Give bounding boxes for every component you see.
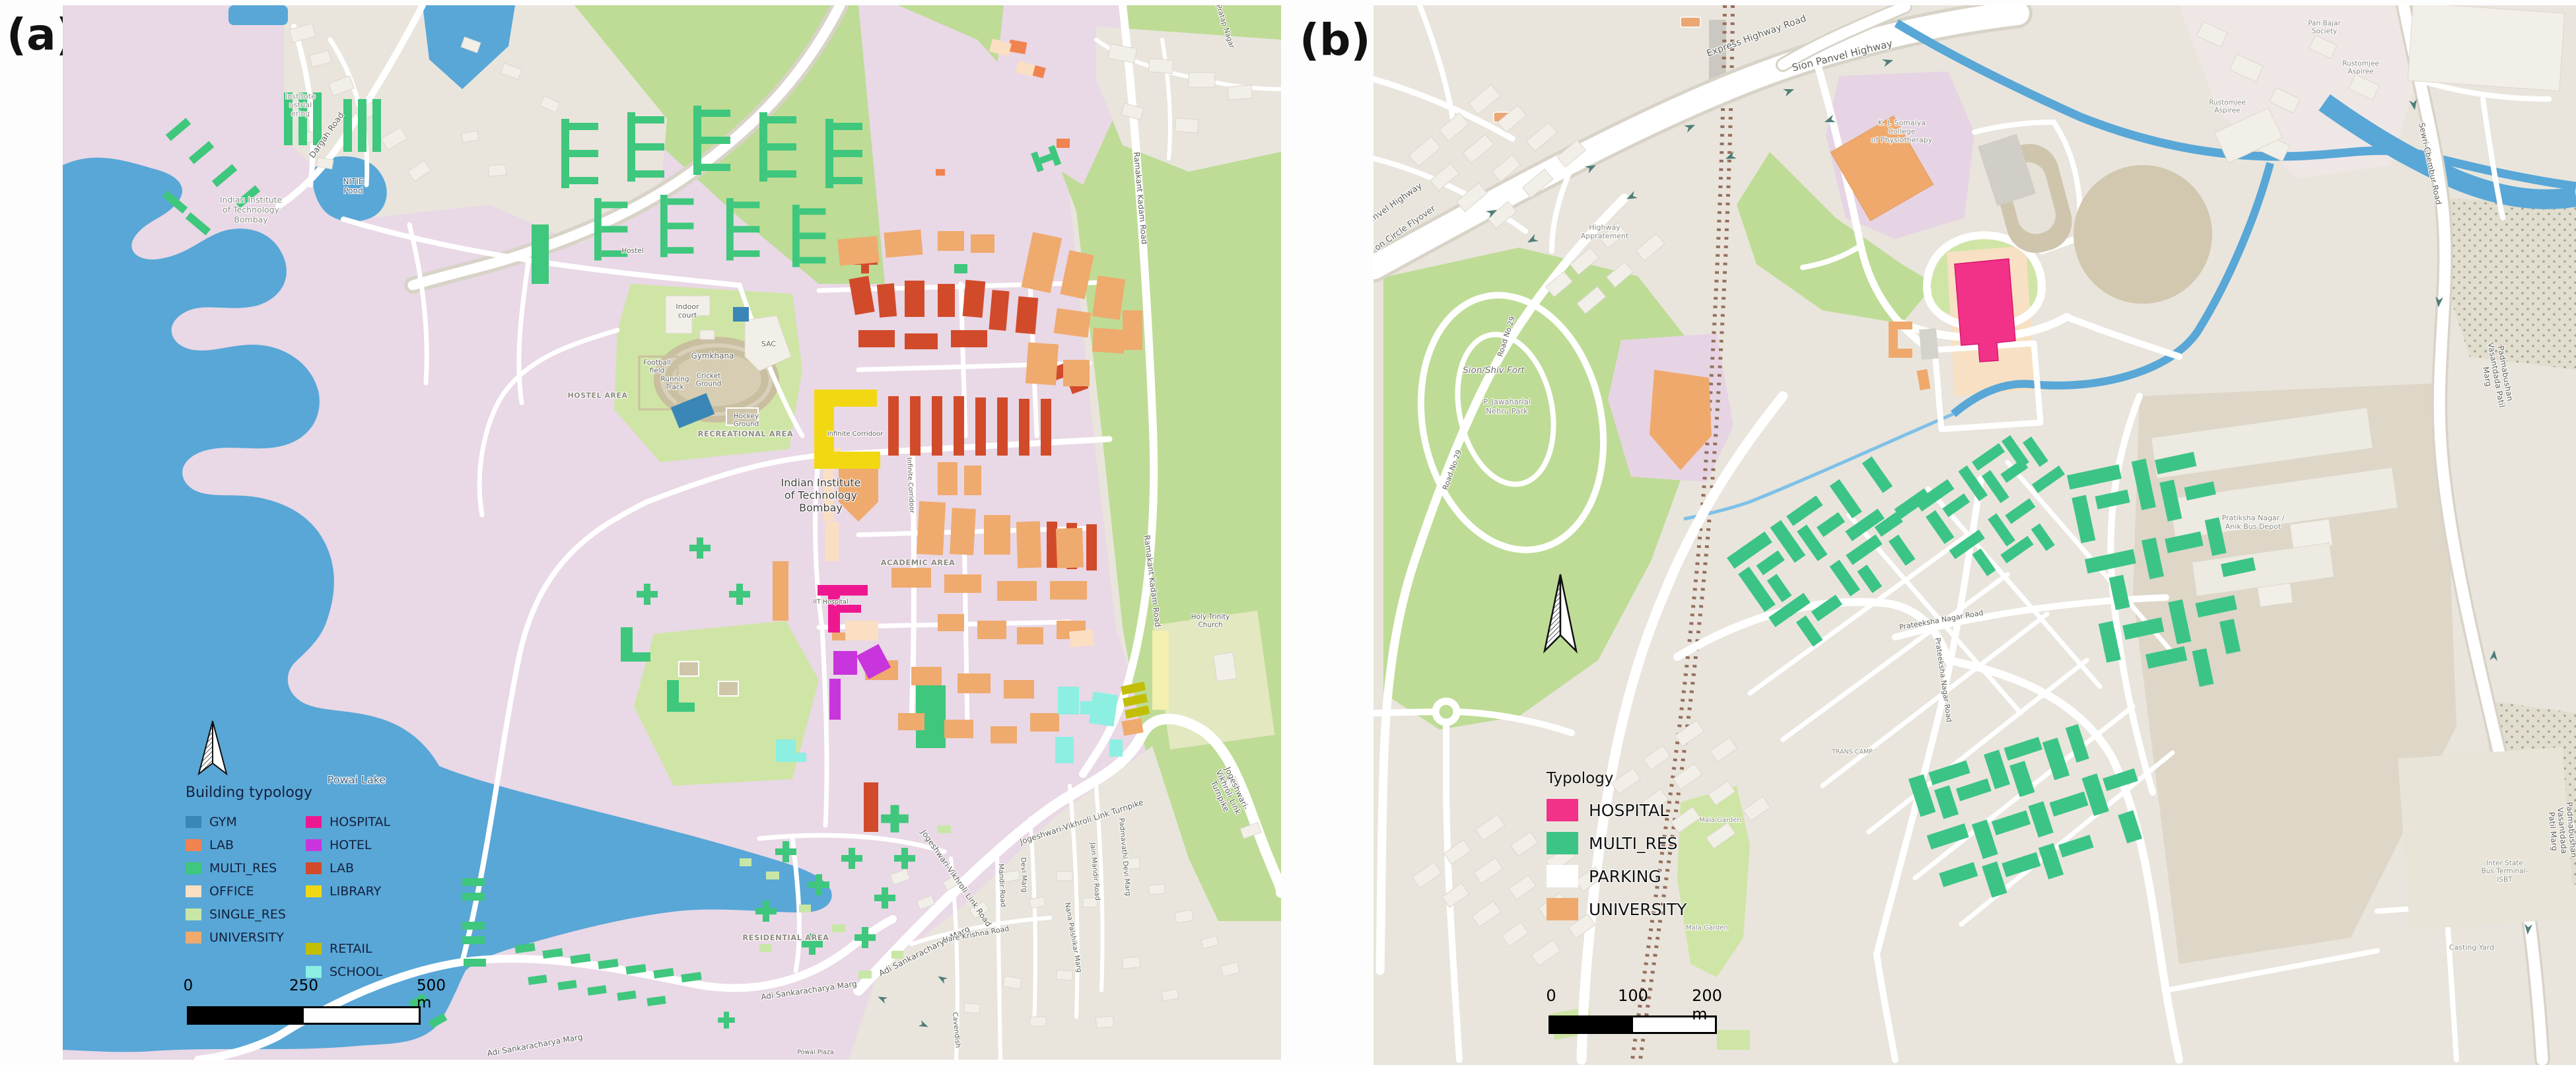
map-panel-a[interactable]: Powai Lake Institute ustrial ering NITIE…	[63, 5, 1281, 1060]
panel-b-tag: (b)	[1300, 15, 1371, 65]
map-panel-b[interactable]: Express Highway Road Sion Panvel Highway…	[1374, 5, 2576, 1065]
map-a-canvas	[63, 5, 1281, 1060]
figure-canvas: (a) (b)	[0, 0, 2576, 1065]
map-b-canvas	[1374, 5, 2576, 1065]
